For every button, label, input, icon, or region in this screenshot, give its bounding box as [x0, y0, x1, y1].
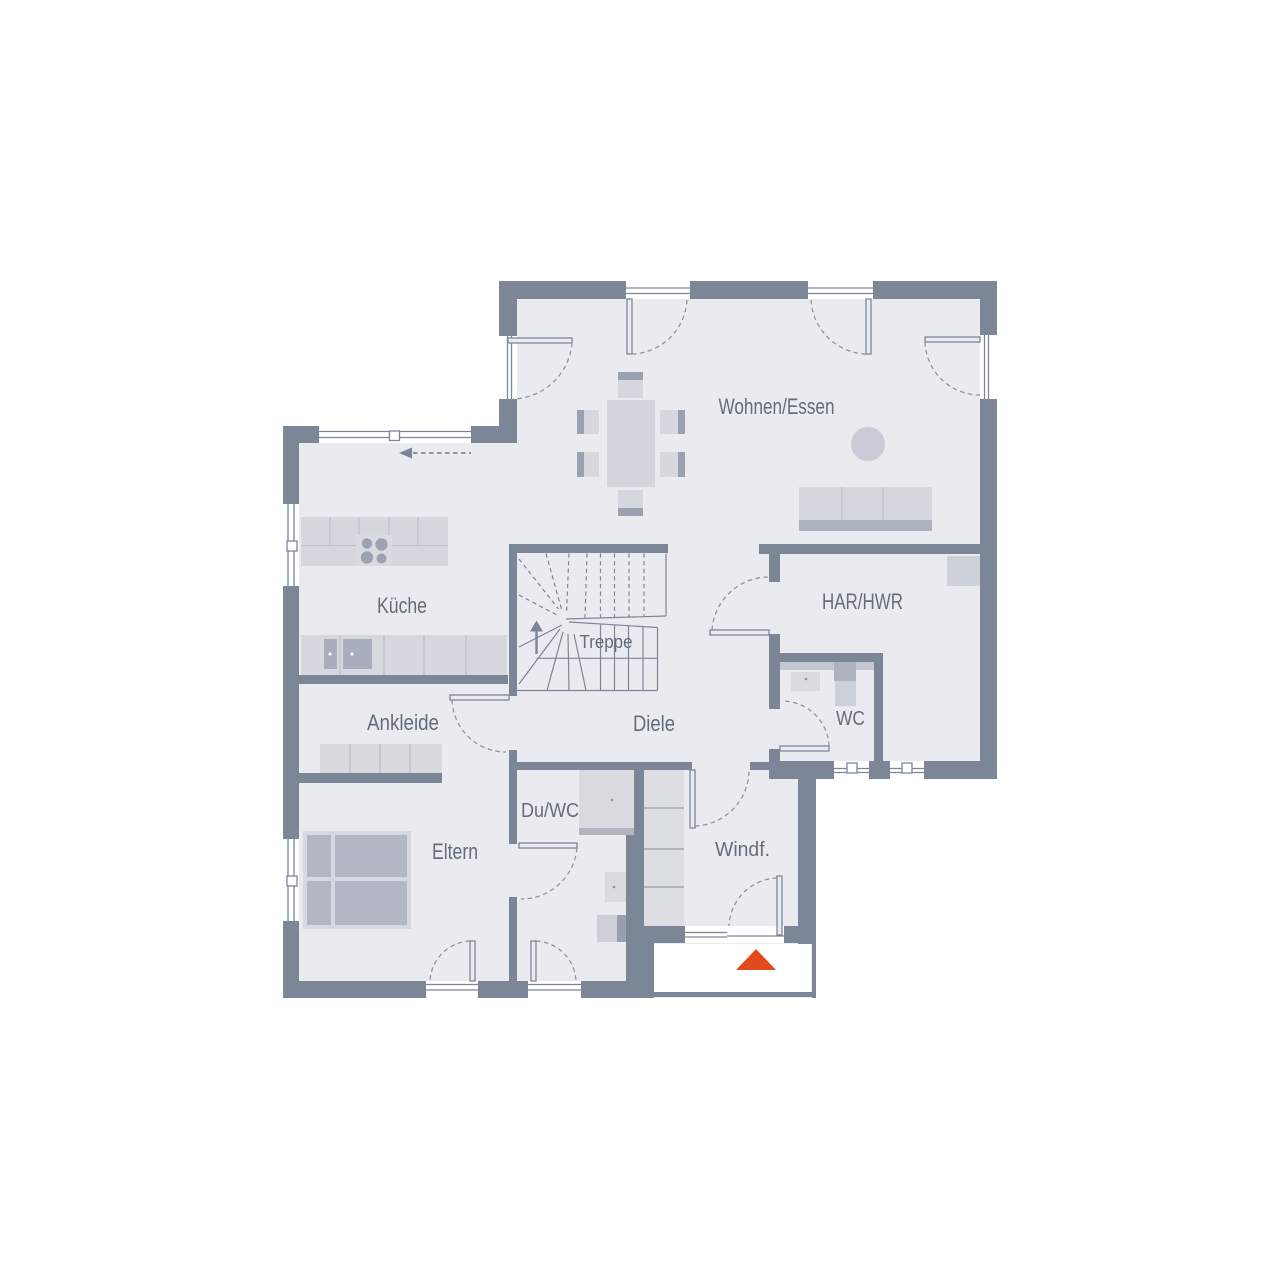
svg-text:WC: WC [836, 708, 865, 730]
svg-text:Windf.: Windf. [715, 839, 770, 861]
svg-text:Du/WC: Du/WC [521, 800, 579, 822]
svg-text:Diele: Diele [633, 711, 675, 736]
svg-text:Eltern: Eltern [432, 839, 478, 864]
svg-text:Wohnen/Essen: Wohnen/Essen [719, 394, 835, 419]
svg-text:Ankleide: Ankleide [367, 710, 439, 735]
svg-text:Küche: Küche [377, 593, 427, 618]
svg-text:Treppe: Treppe [580, 631, 633, 652]
svg-text:HAR/HWR: HAR/HWR [822, 589, 903, 614]
